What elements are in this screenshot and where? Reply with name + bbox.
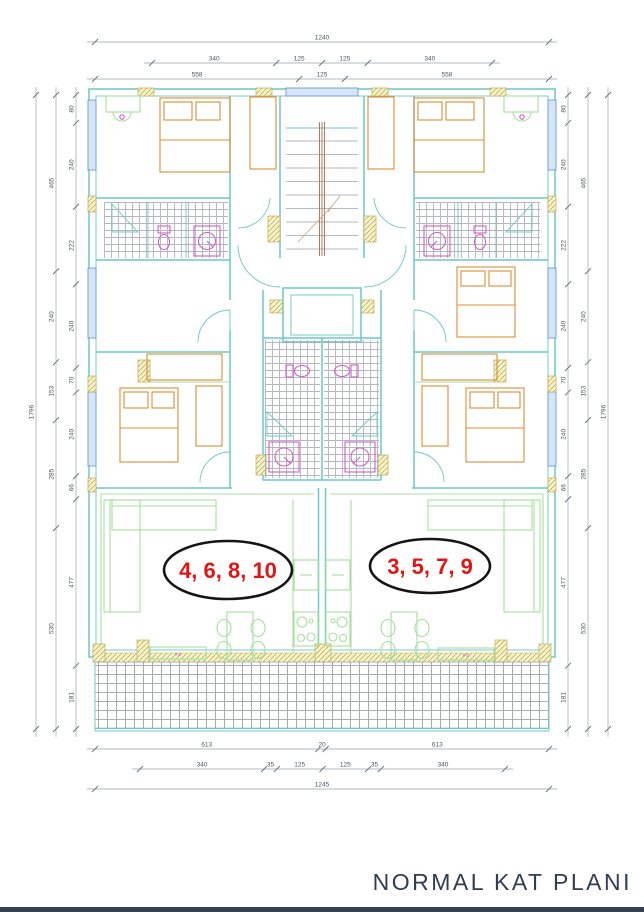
bed [120, 388, 178, 462]
svg-text:285: 285 [581, 468, 588, 479]
svg-text:240: 240 [581, 311, 588, 322]
svg-text:66: 66 [561, 484, 568, 492]
svg-text:477: 477 [69, 577, 76, 588]
svg-text:558: 558 [442, 72, 453, 79]
balcony [95, 662, 549, 731]
svg-text:240: 240 [561, 320, 568, 331]
bed [414, 98, 484, 172]
window-right-1 [548, 100, 556, 170]
svg-text:20: 20 [318, 742, 326, 749]
bed [457, 267, 515, 337]
svg-text:477: 477 [561, 577, 568, 588]
svg-text:181: 181 [69, 692, 76, 703]
svg-text:285: 285 [49, 468, 56, 479]
svg-text:70: 70 [561, 376, 568, 384]
svg-text:35: 35 [267, 762, 275, 769]
svg-text:125: 125 [339, 56, 350, 63]
wardrobe [147, 354, 222, 380]
svg-text:240: 240 [561, 159, 568, 170]
kitchen-counter [293, 500, 318, 653]
svg-text:530: 530 [49, 623, 56, 634]
room-area-text: m2 [175, 652, 182, 657]
svg-text:1796: 1796 [601, 404, 608, 419]
svg-text:222: 222 [561, 240, 568, 251]
floor-plan-drawing: m2 m2 4, 6, 8, 10 3, 5, 7, 9 12403401251… [0, 0, 644, 915]
sink-icon [120, 115, 124, 119]
desk [106, 96, 140, 121]
window-left-3 [88, 392, 96, 466]
svg-text:222: 222 [69, 240, 76, 251]
svg-text:340: 340 [424, 56, 435, 63]
bed [466, 388, 524, 462]
unit-label-left: 4, 6, 8, 10 [164, 541, 292, 599]
svg-text:125: 125 [340, 762, 351, 769]
window-left-2 [88, 268, 96, 338]
svg-text:80: 80 [561, 105, 568, 113]
svg-text:340: 340 [197, 762, 208, 769]
page-title: NORMAL KAT PLANI [373, 869, 632, 895]
wardrobe [196, 386, 222, 446]
kitchen-counter [326, 500, 351, 653]
svg-text:340: 340 [438, 762, 449, 769]
svg-text:465: 465 [581, 177, 588, 188]
window-right-2 [548, 268, 556, 338]
svg-text:181: 181 [561, 692, 568, 703]
window-right-3 [548, 392, 556, 466]
desk [504, 96, 538, 121]
sink-icon [520, 115, 524, 119]
svg-text:613: 613 [201, 742, 212, 749]
svg-text:125: 125 [294, 762, 305, 769]
svg-text:465: 465 [49, 177, 56, 188]
svg-text:153: 153 [581, 385, 588, 396]
bed [160, 98, 230, 172]
window-top-center [286, 88, 358, 96]
svg-text:240: 240 [69, 320, 76, 331]
svg-text:558: 558 [192, 72, 203, 79]
wardrobe [422, 354, 497, 380]
svg-text:70: 70 [69, 376, 76, 384]
svg-text:125: 125 [317, 72, 328, 79]
wardrobe [250, 97, 276, 169]
floor-plan-sheet: m2 m2 4, 6, 8, 10 3, 5, 7, 9 12403401251… [0, 0, 644, 915]
svg-text:240: 240 [69, 429, 76, 440]
svg-text:66: 66 [69, 484, 76, 492]
svg-text:530: 530 [581, 623, 588, 634]
unit-numbers-left: 4, 6, 8, 10 [179, 558, 277, 583]
svg-text:1796: 1796 [29, 404, 36, 419]
svg-text:340: 340 [209, 56, 220, 63]
staircase [286, 122, 358, 256]
svg-text:35: 35 [371, 762, 379, 769]
room-area-text: m2 [463, 653, 470, 658]
wardrobe [422, 386, 448, 446]
svg-text:240: 240 [69, 159, 76, 170]
svg-text:125: 125 [294, 56, 305, 63]
svg-text:240: 240 [49, 311, 56, 322]
footer-bar [0, 907, 644, 912]
svg-text:613: 613 [432, 742, 443, 749]
wardrobe [368, 97, 394, 169]
svg-text:80: 80 [69, 105, 76, 113]
svg-text:240: 240 [561, 429, 568, 440]
unit-label-right: 3, 5, 7, 9 [370, 539, 490, 593]
svg-text:1240: 1240 [315, 35, 330, 42]
elevator [283, 288, 361, 342]
svg-text:153: 153 [49, 385, 56, 396]
svg-text:1245: 1245 [315, 782, 330, 789]
unit-numbers-right: 3, 5, 7, 9 [387, 554, 473, 579]
window-left-1 [88, 100, 96, 170]
